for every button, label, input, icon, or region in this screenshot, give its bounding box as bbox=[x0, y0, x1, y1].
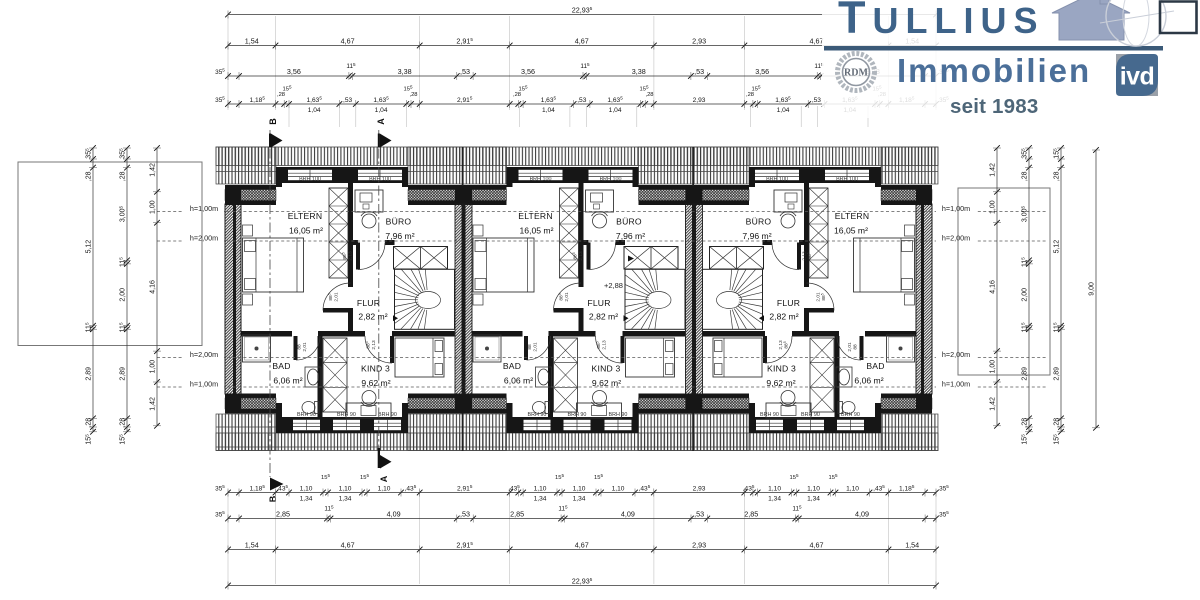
svg-text:1,00: 1,00 bbox=[150, 360, 157, 374]
svg-text:,28: ,28 bbox=[645, 92, 653, 98]
svg-text:6,06 m²: 6,06 m² bbox=[273, 376, 302, 386]
svg-text:BRH 90: BRH 90 bbox=[378, 412, 397, 418]
svg-text:1,10: 1,10 bbox=[339, 485, 352, 492]
svg-text:3,38: 3,38 bbox=[398, 67, 412, 76]
svg-text:1,34: 1,34 bbox=[339, 496, 352, 503]
svg-text:9,62 m²: 9,62 m² bbox=[361, 378, 390, 388]
svg-text:1,42: 1,42 bbox=[150, 163, 157, 177]
svg-text:2,01: 2,01 bbox=[302, 342, 308, 352]
svg-text:1,10: 1,10 bbox=[534, 485, 547, 492]
svg-text:BÜRO: BÜRO bbox=[746, 217, 772, 227]
svg-text:RDM: RDM bbox=[844, 68, 868, 79]
svg-text:KIND 3: KIND 3 bbox=[767, 364, 796, 374]
svg-text:9,62 m²: 9,62 m² bbox=[766, 378, 795, 388]
svg-text:2,01: 2,01 bbox=[816, 292, 822, 302]
svg-text:,53: ,53 bbox=[812, 97, 821, 104]
svg-text:ELTERN: ELTERN bbox=[518, 211, 552, 221]
svg-text:ELTERN: ELTERN bbox=[288, 211, 322, 221]
svg-text:3,56: 3,56 bbox=[521, 67, 535, 76]
svg-text:3,56: 3,56 bbox=[287, 67, 301, 76]
svg-text:h=1,00m: h=1,00m bbox=[942, 380, 970, 389]
svg-text:3,38: 3,38 bbox=[632, 67, 646, 76]
svg-text:h=1,00m: h=1,00m bbox=[942, 204, 970, 213]
svg-text:2,89: 2,89 bbox=[1022, 367, 1029, 381]
svg-text:1,34: 1,34 bbox=[534, 496, 547, 503]
svg-text:2,01: 2,01 bbox=[334, 292, 340, 302]
svg-text:4,67: 4,67 bbox=[810, 36, 824, 45]
svg-text:FLUR: FLUR bbox=[357, 298, 380, 308]
svg-text:KIND 3: KIND 3 bbox=[361, 364, 390, 374]
svg-text:BÜRO: BÜRO bbox=[386, 217, 412, 227]
svg-text:2,93: 2,93 bbox=[693, 97, 706, 104]
svg-text:1,10: 1,10 bbox=[300, 485, 313, 492]
svg-text:,28: ,28 bbox=[120, 418, 127, 428]
svg-text:,28: ,28 bbox=[1054, 171, 1061, 181]
svg-text:4,67: 4,67 bbox=[810, 540, 824, 549]
svg-text:A: A bbox=[376, 118, 386, 125]
svg-text:88: 88 bbox=[297, 344, 303, 350]
svg-text:1,10: 1,10 bbox=[573, 485, 586, 492]
svg-text:BAD: BAD bbox=[272, 361, 290, 371]
svg-text:BAD: BAD bbox=[866, 361, 884, 371]
svg-text:2,01: 2,01 bbox=[847, 342, 853, 352]
svg-text:1,10: 1,10 bbox=[768, 485, 781, 492]
svg-text:1,04: 1,04 bbox=[542, 107, 555, 114]
svg-text:BRH 90: BRH 90 bbox=[801, 412, 820, 418]
svg-text:4,09: 4,09 bbox=[621, 509, 635, 518]
svg-text:1,42: 1,42 bbox=[990, 397, 997, 411]
svg-text:,28: ,28 bbox=[409, 92, 417, 98]
svg-text:3,56: 3,56 bbox=[755, 67, 769, 76]
svg-text:16,05 m²: 16,05 m² bbox=[834, 226, 868, 236]
svg-text:1,10: 1,10 bbox=[612, 485, 625, 492]
svg-text:4,09: 4,09 bbox=[387, 509, 401, 518]
svg-text:2,01: 2,01 bbox=[564, 292, 570, 302]
svg-text:BRH 100: BRH 100 bbox=[299, 176, 321, 182]
svg-text:,28: ,28 bbox=[513, 92, 521, 98]
svg-text:2,89: 2,89 bbox=[86, 367, 93, 381]
svg-text:Immobilien: Immobilien bbox=[897, 52, 1091, 89]
svg-text:4,16: 4,16 bbox=[150, 280, 157, 294]
svg-text:1,10: 1,10 bbox=[378, 485, 391, 492]
svg-text:h=2,00m: h=2,00m bbox=[190, 350, 218, 359]
svg-text:1,54: 1,54 bbox=[905, 540, 919, 549]
svg-text:2,13: 2,13 bbox=[602, 340, 608, 350]
svg-text:seit 1983: seit 1983 bbox=[950, 95, 1038, 118]
svg-text:2,00: 2,00 bbox=[120, 288, 127, 302]
svg-text:2,13: 2,13 bbox=[778, 340, 784, 350]
svg-text:9,00: 9,00 bbox=[1089, 282, 1096, 296]
svg-text:2,85: 2,85 bbox=[276, 509, 290, 518]
svg-text:4,67: 4,67 bbox=[575, 540, 589, 549]
svg-text:BRH 90: BRH 90 bbox=[760, 412, 779, 418]
svg-text:,53: ,53 bbox=[577, 97, 586, 104]
svg-text:KIND 3: KIND 3 bbox=[592, 364, 621, 374]
svg-text:16,05 m²: 16,05 m² bbox=[289, 226, 323, 236]
svg-text:BRH 100: BRH 100 bbox=[530, 176, 552, 182]
svg-text:A: A bbox=[379, 475, 389, 482]
svg-text:2,13: 2,13 bbox=[578, 251, 584, 261]
svg-text:BÜRO: BÜRO bbox=[616, 217, 642, 227]
svg-text:2,93: 2,93 bbox=[692, 540, 706, 549]
svg-text:6,06 m²: 6,06 m² bbox=[504, 376, 533, 386]
svg-text:88: 88 bbox=[527, 344, 533, 350]
svg-text:BRH 100: BRH 100 bbox=[836, 176, 858, 182]
svg-text:,28: ,28 bbox=[86, 418, 93, 428]
svg-text:4,67: 4,67 bbox=[341, 540, 355, 549]
svg-text:2,82 m²: 2,82 m² bbox=[769, 312, 798, 322]
svg-text:7,96 m²: 7,96 m² bbox=[616, 231, 645, 241]
svg-text:h=2,00m: h=2,00m bbox=[942, 234, 970, 243]
svg-text:9,62 m²: 9,62 m² bbox=[592, 378, 621, 388]
svg-text:22,935: 22,935 bbox=[572, 576, 593, 585]
svg-text:88: 88 bbox=[853, 344, 859, 350]
svg-text:ELTERN: ELTERN bbox=[835, 211, 869, 221]
svg-text:,28: ,28 bbox=[746, 92, 754, 98]
svg-text:2,93: 2,93 bbox=[693, 485, 706, 492]
svg-text:1,00: 1,00 bbox=[150, 200, 157, 214]
svg-text:,28: ,28 bbox=[86, 171, 93, 181]
svg-text:5,12: 5,12 bbox=[1054, 240, 1061, 254]
svg-text:1,10: 1,10 bbox=[807, 485, 820, 492]
svg-text:1,54: 1,54 bbox=[245, 36, 259, 45]
svg-text:7,96 m²: 7,96 m² bbox=[742, 231, 771, 241]
svg-text:2,82 m²: 2,82 m² bbox=[358, 312, 387, 322]
svg-text:1,34: 1,34 bbox=[768, 496, 781, 503]
svg-text:1,00: 1,00 bbox=[990, 200, 997, 214]
svg-text:+2,88: +2,88 bbox=[604, 281, 623, 290]
svg-text:h=2,00m: h=2,00m bbox=[942, 350, 970, 359]
svg-text:BRH 90: BRH 90 bbox=[568, 412, 587, 418]
svg-text:,53: ,53 bbox=[343, 97, 352, 104]
svg-text:TULLIUS: TULLIUS bbox=[838, 0, 1045, 43]
svg-text:,53: ,53 bbox=[460, 67, 470, 76]
svg-text:2,01: 2,01 bbox=[533, 342, 539, 352]
svg-text:,28: ,28 bbox=[1054, 418, 1061, 428]
svg-text:B: B bbox=[268, 118, 278, 125]
svg-text:1,10: 1,10 bbox=[846, 485, 859, 492]
svg-text:6,06 m²: 6,06 m² bbox=[854, 376, 883, 386]
svg-text:BRH 90: BRH 90 bbox=[609, 412, 628, 418]
svg-text:1,34: 1,34 bbox=[807, 496, 820, 503]
svg-text:FLUR: FLUR bbox=[587, 298, 610, 308]
svg-text:16,05 m²: 16,05 m² bbox=[520, 226, 554, 236]
svg-text:1,04: 1,04 bbox=[609, 107, 622, 114]
svg-text:1,04: 1,04 bbox=[375, 107, 388, 114]
svg-text:BRH 100: BRH 100 bbox=[369, 176, 391, 182]
svg-text:4,16: 4,16 bbox=[990, 280, 997, 294]
svg-text:BRH 90: BRH 90 bbox=[337, 412, 356, 418]
svg-text:FLUR: FLUR bbox=[777, 298, 800, 308]
svg-text:2,85: 2,85 bbox=[510, 509, 524, 518]
svg-text:BRH 100: BRH 100 bbox=[766, 176, 788, 182]
svg-text:2,93: 2,93 bbox=[692, 36, 706, 45]
svg-text:,28: ,28 bbox=[120, 171, 127, 181]
svg-text:h=2,00m: h=2,00m bbox=[190, 234, 218, 243]
svg-text:5,12: 5,12 bbox=[86, 240, 93, 254]
svg-text:ivd: ivd bbox=[1120, 63, 1155, 91]
svg-text:BRH 100: BRH 100 bbox=[600, 176, 622, 182]
svg-text:22,935: 22,935 bbox=[572, 5, 593, 14]
svg-text:h=1,00m: h=1,00m bbox=[190, 204, 218, 213]
svg-text:,28: ,28 bbox=[277, 92, 285, 98]
svg-text:2,85: 2,85 bbox=[744, 509, 758, 518]
svg-text:2,13: 2,13 bbox=[802, 251, 808, 261]
svg-text:1,42: 1,42 bbox=[990, 163, 997, 177]
svg-text:,28: ,28 bbox=[1022, 418, 1029, 428]
svg-text:1,04: 1,04 bbox=[308, 107, 321, 114]
svg-text:7,96 m²: 7,96 m² bbox=[385, 231, 414, 241]
svg-text:2,00: 2,00 bbox=[1022, 288, 1029, 302]
svg-text:,53: ,53 bbox=[694, 509, 704, 518]
svg-text:1,34: 1,34 bbox=[300, 496, 313, 503]
svg-text:1,54: 1,54 bbox=[245, 540, 259, 549]
svg-text:1,34: 1,34 bbox=[573, 496, 586, 503]
svg-text:1,42: 1,42 bbox=[150, 397, 157, 411]
svg-text:4,67: 4,67 bbox=[575, 36, 589, 45]
svg-text:B: B bbox=[268, 495, 278, 502]
svg-text:2,82 m²: 2,82 m² bbox=[589, 312, 618, 322]
svg-text:BAD: BAD bbox=[503, 361, 521, 371]
svg-text:2,89: 2,89 bbox=[1054, 367, 1061, 381]
svg-text:,53: ,53 bbox=[460, 509, 470, 518]
svg-text:1,00: 1,00 bbox=[990, 360, 997, 374]
svg-text:1,04: 1,04 bbox=[777, 107, 790, 114]
svg-text:2,89: 2,89 bbox=[120, 367, 127, 381]
svg-text:4,09: 4,09 bbox=[855, 509, 869, 518]
svg-text:4,67: 4,67 bbox=[341, 36, 355, 45]
svg-text:h=1,00m: h=1,00m bbox=[190, 380, 218, 389]
svg-text:,28: ,28 bbox=[1022, 171, 1029, 181]
svg-text:,53: ,53 bbox=[694, 67, 704, 76]
svg-text:2,13: 2,13 bbox=[371, 340, 377, 350]
